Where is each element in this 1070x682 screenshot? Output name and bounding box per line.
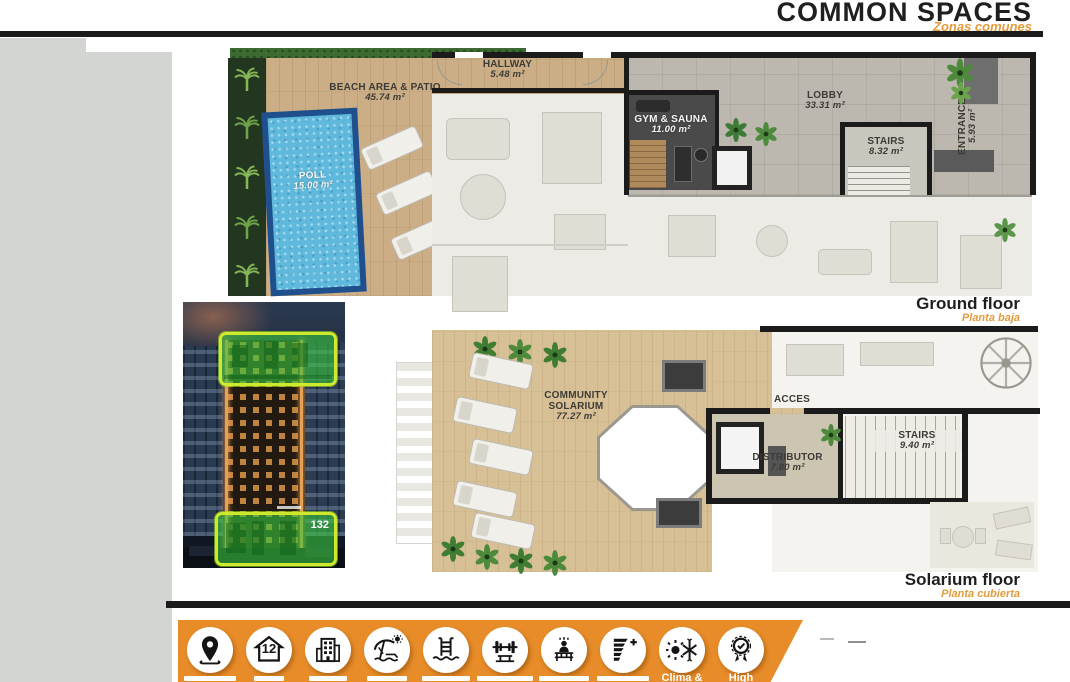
deck-plant [540, 548, 570, 578]
left-neighbor-building [183, 346, 223, 536]
clipped-label [254, 676, 284, 681]
community-solarium-label: COMMUNITY SOLARIUM77.27 m² [520, 390, 632, 423]
pool-ladder-icon [423, 627, 469, 673]
clipped-label [367, 676, 407, 681]
energy-efficiency-icon [600, 627, 646, 673]
solarium-highlight-box [219, 332, 337, 386]
amenity-label-climate: Clima & [650, 672, 714, 682]
lobby-plant [722, 116, 750, 144]
building-photo: 132 [183, 302, 345, 568]
clipped-label [539, 676, 589, 681]
left-margin-strip [0, 38, 86, 52]
solarium-stairs [845, 416, 960, 498]
beach-umbrella-icon [364, 627, 410, 673]
hallway-wall [432, 88, 628, 93]
house-12-glyph: 12 [246, 641, 292, 656]
unit-badge: 132 [311, 519, 329, 531]
exterior-plant [991, 216, 1019, 244]
ground-floor-heading: Ground floor [720, 294, 1020, 314]
pergola-slats [396, 362, 434, 544]
deck-plant [540, 340, 570, 370]
amenity-label-high: High [709, 672, 773, 682]
spiral-stair-icon [978, 334, 1034, 392]
skylight-octagon [597, 405, 713, 511]
location-pin-icon [187, 627, 233, 673]
climate-icon [659, 627, 705, 673]
ground-floor-plan: BEACH AREA & PATIO45.74 m² POLL15.00 m² … [215, 44, 1040, 296]
hallway-label: HALLWAY5.48 m² [455, 59, 560, 81]
distributor-label: DISTRIBUTOR7.80 m² [735, 452, 840, 474]
right-rooms-wall-top [760, 326, 1038, 332]
footer-rule [166, 601, 1070, 608]
terrace [930, 502, 1034, 568]
footer-mark [848, 641, 866, 643]
sauna-icon [541, 627, 587, 673]
ground-highlight-box: 132 [215, 512, 337, 566]
clipped-label [309, 676, 347, 681]
gym-barbell-icon [482, 627, 528, 673]
clipped-label [597, 676, 649, 681]
left-margin-strip-lower [0, 52, 172, 682]
house-12-icon: 12 [246, 627, 292, 673]
palm-strip [228, 58, 266, 296]
clipped-label [422, 676, 470, 681]
deck-plant [438, 534, 468, 564]
roof-panel [656, 498, 702, 528]
clipped-label [477, 676, 533, 681]
stair-treads [848, 166, 910, 195]
solarium-floor-subheading: Planta cubierta [720, 588, 1020, 600]
elevator [712, 146, 752, 190]
solarium-floor-heading: Solarium floor [720, 570, 1020, 590]
quality-badge-icon [718, 627, 764, 673]
stairs-plant [818, 422, 844, 448]
gym-sauna-label: GYM & SAUNA11.00 m² [630, 114, 712, 136]
gym-sauna-room: GYM & SAUNA11.00 m² [628, 94, 715, 190]
pool: POLL15.00 m² [261, 108, 366, 297]
header-rule [0, 31, 1043, 37]
solarium-floor-plan: COMMUNITY SOLARIUM77.27 m² DISTRIBUTOR7.… [390, 326, 1040, 572]
acces-label: ACCES [762, 394, 822, 405]
brochure-page: COMMON SPACES Zonas comunes BEACH AREA &… [0, 0, 1070, 682]
ground-floor-subheading: Planta baja [720, 312, 1020, 324]
exterior-plant [948, 80, 974, 106]
deck-plant [506, 546, 536, 576]
roof-panel [662, 360, 706, 392]
lower-apartments [628, 195, 1032, 296]
stairs-label: STAIRS8.32 m² [847, 136, 925, 158]
solarium-stairs-label: STAIRS9.40 m² [872, 430, 962, 452]
apartment-interior [432, 94, 628, 296]
building-icon [305, 627, 351, 673]
clipped-label [184, 676, 236, 681]
deck-plant [472, 542, 502, 572]
footer-mark [820, 638, 834, 640]
lobby-plant [752, 120, 780, 148]
pool-label: POLL15.00 m² [272, 168, 353, 194]
lobby-label: LOBBY33.31 m² [770, 90, 880, 112]
amenities-bar: 12 Clima & High [178, 620, 803, 682]
